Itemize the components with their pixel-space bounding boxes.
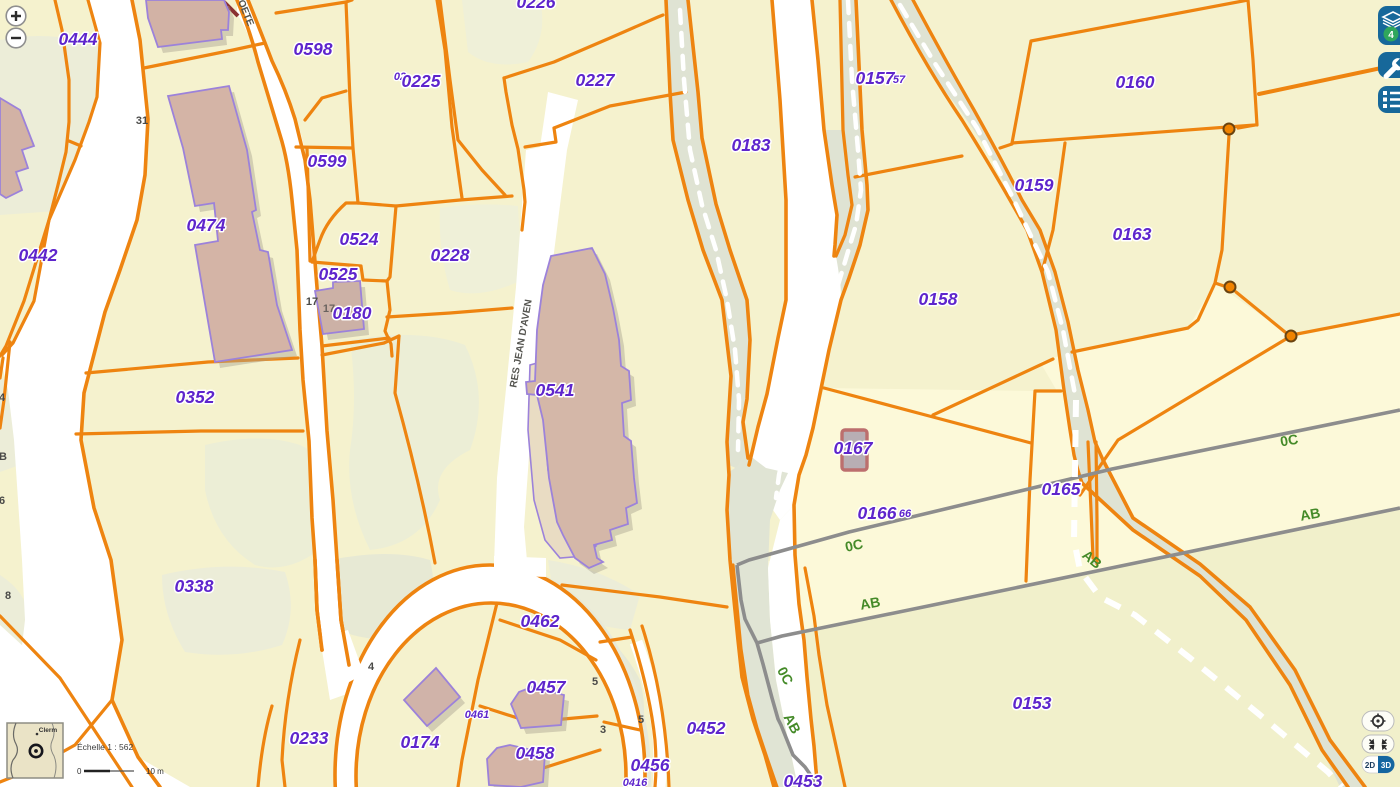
svg-text:0226: 0226 [517,0,556,12]
svg-text:0457: 0457 [527,677,567,697]
svg-text:0233: 0233 [290,728,329,748]
svg-text:0461: 0461 [465,709,489,721]
svg-text:17: 17 [306,296,318,308]
svg-text:0474: 0474 [187,215,226,235]
svg-text:8: 8 [5,590,11,602]
svg-text:0462: 0462 [521,611,560,631]
svg-text:0166: 0166 [858,503,897,523]
svg-text:0157: 0157 [856,68,896,88]
svg-text:0: 0 [77,767,82,776]
svg-text:0444: 0444 [59,29,98,49]
svg-text:0541: 0541 [536,380,575,400]
svg-text:10 m: 10 m [146,767,164,776]
svg-text:0159: 0159 [1015,175,1054,195]
svg-text:0452: 0452 [687,718,726,738]
svg-text:0153: 0153 [1013,693,1052,713]
svg-text:0163: 0163 [1113,224,1152,244]
svg-text:0458: 0458 [516,743,555,763]
svg-text:4: 4 [0,392,6,404]
svg-text:0599: 0599 [308,151,347,171]
svg-text:Clerm: Clerm [39,727,58,734]
svg-text:5: 5 [592,676,598,688]
svg-text:4: 4 [1388,30,1394,41]
svg-text:0227: 0227 [576,70,616,90]
svg-text:0160: 0160 [1116,72,1155,92]
svg-text:3D: 3D [1381,761,1391,770]
svg-text:57: 57 [893,74,906,86]
svg-text:3: 3 [600,724,606,736]
svg-text:6: 6 [0,495,5,507]
svg-text:66: 66 [899,508,912,520]
svg-text:0167: 0167 [834,438,874,458]
svg-text:0453: 0453 [784,771,823,787]
svg-text:31: 31 [136,115,148,127]
svg-text:0598: 0598 [294,39,333,59]
svg-text:0174: 0174 [401,732,440,752]
svg-text:0165: 0165 [1042,479,1081,499]
svg-text:5: 5 [638,714,644,726]
svg-text:0180: 0180 [333,303,372,323]
svg-text:Échelle 1 : 562: Échelle 1 : 562 [77,742,134,752]
svg-text:0525: 0525 [319,264,358,284]
svg-text:0442: 0442 [19,245,58,265]
svg-text:B: B [0,451,7,463]
svg-text:0158: 0158 [919,289,958,309]
svg-text:0228: 0228 [431,245,470,265]
svg-text:0338: 0338 [175,576,214,596]
svg-text:0C: 0C [1279,431,1299,450]
svg-text:0416: 0416 [623,777,648,787]
svg-text:0183: 0183 [732,135,771,155]
svg-text:2D: 2D [1365,761,1375,770]
svg-text:4: 4 [368,661,375,673]
svg-text:0456: 0456 [631,755,670,775]
svg-text:0225: 0225 [402,71,441,91]
svg-text:0352: 0352 [176,387,215,407]
svg-text:0524: 0524 [340,229,379,249]
